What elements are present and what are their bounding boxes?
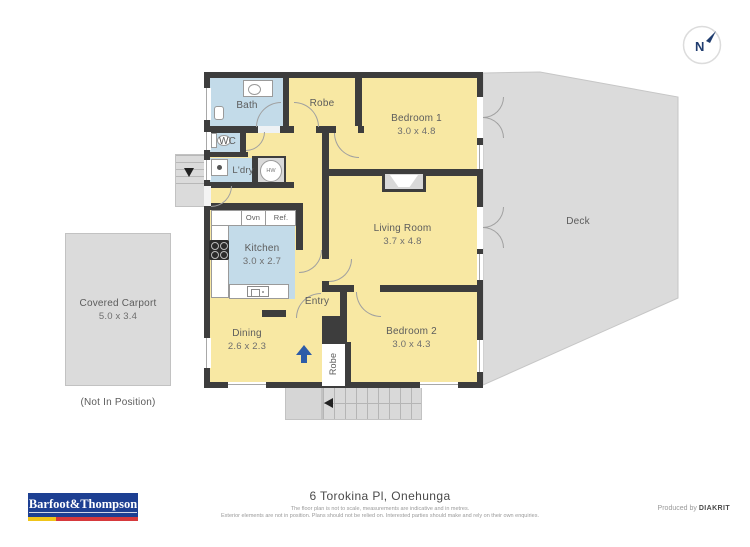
window bbox=[477, 340, 483, 372]
brand-logo-stripe bbox=[28, 517, 138, 521]
window bbox=[477, 254, 483, 280]
kitchen-label: Kitchen 3.0 x 2.7 bbox=[229, 242, 295, 268]
brand-logo: Barfoot&Thompson bbox=[28, 493, 138, 517]
hw-cylinder: HW bbox=[260, 160, 282, 182]
sink-icon bbox=[247, 286, 269, 297]
side-stairs bbox=[175, 154, 205, 207]
door-gap bbox=[354, 285, 380, 292]
wall bbox=[328, 285, 483, 292]
compass-n: N bbox=[695, 39, 704, 54]
kitchen-counter bbox=[211, 226, 229, 298]
vanity bbox=[243, 80, 273, 97]
robe2-label: Robe bbox=[327, 344, 339, 384]
window bbox=[477, 145, 483, 169]
producer-credit: Produced by DIAKRIT bbox=[610, 505, 730, 512]
floor-plan-page: Deck Covered Carport 5.0 x 3.4 (Not In P… bbox=[0, 0, 750, 547]
laundry-label: L'dry bbox=[226, 164, 260, 177]
door-gap bbox=[336, 126, 358, 133]
carport-dims: 5.0 x 3.4 bbox=[66, 310, 170, 323]
hot-water-cupboard: HW bbox=[256, 156, 286, 184]
disclaimer: The floor plan is not to scale, measurem… bbox=[180, 506, 580, 520]
window bbox=[204, 132, 211, 150]
brand-logo-text: Barfoot&Thompson bbox=[29, 497, 137, 513]
stairs-left-arrow-icon bbox=[324, 398, 333, 408]
producer-name: DIAKRIT bbox=[699, 505, 730, 512]
address-title: 6 Torokina Pl, Onehunga bbox=[230, 489, 530, 503]
side-door-gap bbox=[204, 186, 211, 206]
fridge-label: Ref. bbox=[266, 212, 296, 224]
cooktop-icon bbox=[209, 240, 229, 260]
entry-label: Entry bbox=[294, 295, 340, 308]
deck-label: Deck bbox=[540, 215, 616, 228]
carport-label: Covered Carport bbox=[66, 297, 170, 310]
bath-label: Bath bbox=[210, 99, 284, 112]
wall bbox=[296, 203, 303, 250]
bedroom1-label: Bedroom 1 3.0 x 4.8 bbox=[356, 112, 477, 138]
wc-label: WC bbox=[211, 135, 244, 148]
stairs-down-arrow-icon bbox=[184, 168, 194, 177]
dining-label: Dining 2.6 x 2.3 bbox=[212, 327, 282, 353]
door-gap bbox=[294, 126, 316, 133]
window bbox=[228, 382, 266, 388]
carport-note: (Not In Position) bbox=[65, 396, 171, 409]
compass-icon: N bbox=[682, 25, 722, 65]
oven-label: Ovn bbox=[241, 212, 265, 224]
bedroom2-label: Bedroom 2 3.0 x 4.3 bbox=[346, 325, 477, 351]
fireplace bbox=[382, 171, 426, 192]
wall bbox=[262, 310, 286, 317]
entry-arrow-icon bbox=[296, 345, 312, 364]
window bbox=[420, 382, 458, 388]
front-stairs bbox=[322, 386, 422, 420]
robe1-label: Robe bbox=[289, 97, 355, 110]
window bbox=[204, 160, 211, 180]
window bbox=[204, 338, 211, 368]
wall bbox=[322, 316, 347, 344]
carport-area: Covered Carport 5.0 x 3.4 bbox=[65, 233, 171, 386]
living-label: Living Room 3.7 x 4.8 bbox=[328, 222, 477, 248]
